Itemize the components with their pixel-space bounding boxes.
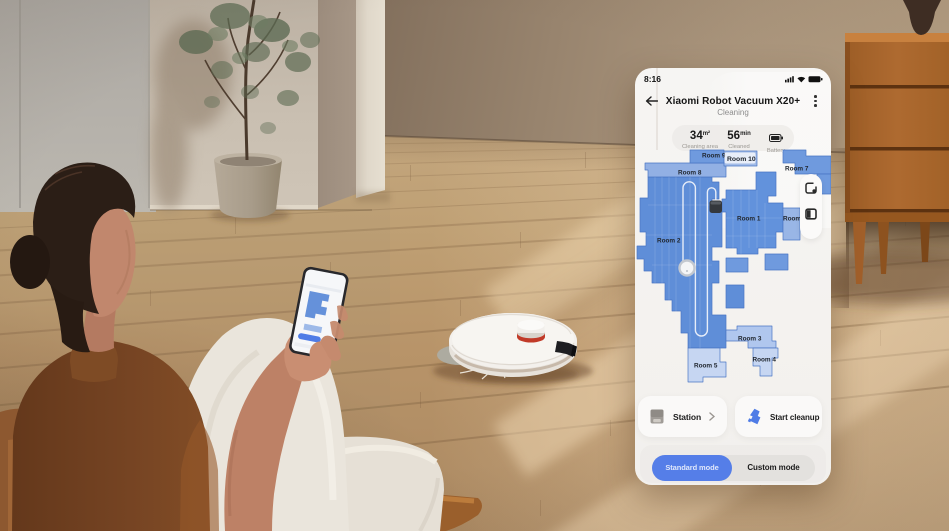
svg-text:Room 8: Room 8 bbox=[678, 170, 702, 177]
svg-text:Room 10: Room 10 bbox=[727, 156, 756, 163]
svg-text:Room 1: Room 1 bbox=[737, 216, 761, 223]
svg-text:Room 5: Room 5 bbox=[694, 363, 718, 370]
svg-text:Room 4: Room 4 bbox=[753, 357, 777, 364]
svg-text:Room 2: Room 2 bbox=[657, 238, 681, 245]
svg-text:Room 3: Room 3 bbox=[738, 336, 762, 343]
svg-text:Room 7: Room 7 bbox=[785, 166, 809, 173]
svg-text:Room 9: Room 9 bbox=[702, 153, 726, 160]
